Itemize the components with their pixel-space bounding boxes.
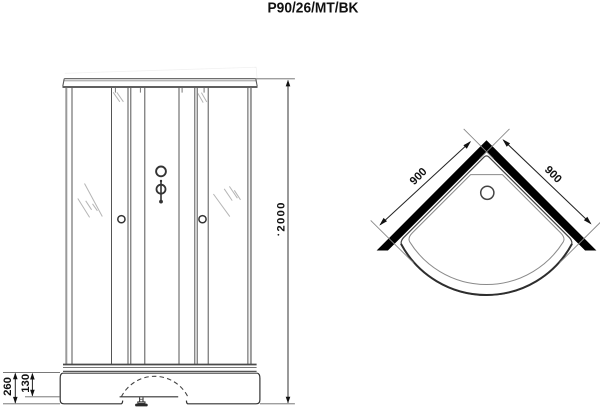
svg-text:900: 900 [542, 164, 564, 186]
svg-text:P90/26/MT/BK: P90/26/MT/BK [268, 1, 359, 17]
svg-text:260: 260 [2, 377, 14, 396]
svg-text:900: 900 [408, 166, 430, 188]
svg-text:130: 130 [20, 374, 32, 393]
svg-text:2000: 2000 [276, 203, 288, 232]
